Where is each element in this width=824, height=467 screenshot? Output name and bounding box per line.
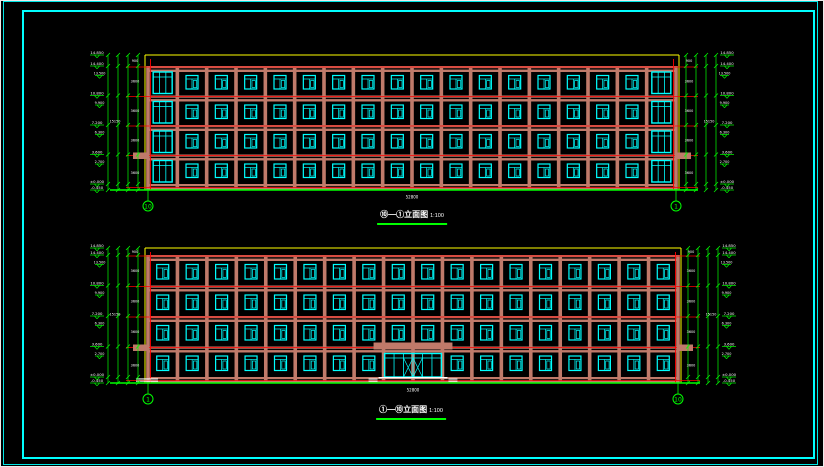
window-glyph: [509, 76, 521, 90]
window-frame: [153, 131, 172, 153]
line: [725, 190, 728, 193]
level-text: 14.850: [722, 243, 736, 248]
window-sash: [488, 331, 491, 339]
stair-window-glyph: [652, 161, 671, 183]
window-glyph: [567, 164, 579, 178]
window-glyph: [481, 265, 493, 280]
window-glyph: [628, 265, 640, 280]
window-sash: [341, 361, 344, 369]
pier: [558, 255, 562, 383]
window-glyph: [597, 76, 609, 90]
line: [727, 347, 730, 350]
dimension-stack-left: 14.85014.40010.8007.2003.600±0.000-0.450…: [90, 243, 140, 386]
window-sash: [193, 81, 196, 88]
level-marker: 3.600: [90, 341, 104, 349]
level-marker: 2.700: [722, 352, 732, 359]
window-glyph: [538, 105, 550, 119]
line: [725, 135, 728, 138]
window-sash: [604, 169, 607, 176]
level-text: 14.400: [722, 250, 736, 255]
line: [722, 164, 725, 167]
pier: [352, 66, 356, 190]
window-glyph: [421, 164, 433, 178]
level-text: 7.200: [92, 311, 103, 316]
pier: [146, 255, 150, 383]
window-sash: [369, 81, 372, 88]
line: [724, 295, 727, 298]
pier: [235, 255, 239, 383]
pier: [645, 66, 649, 190]
window-sash: [428, 81, 431, 88]
axis-number: 1: [146, 396, 150, 403]
window-sash: [516, 169, 519, 176]
line: [722, 105, 725, 108]
dim-text: 3600: [685, 79, 694, 83]
line: [725, 96, 728, 99]
level-text: 3.600: [92, 149, 103, 154]
level-text: 14.400: [90, 250, 104, 255]
window-glyph: [598, 265, 610, 280]
level-marker: 9.900: [95, 101, 105, 108]
line: [729, 255, 732, 258]
line: [97, 347, 100, 350]
window-sash: [665, 270, 668, 278]
stair-window-glyph: [153, 72, 172, 94]
window-sash: [282, 300, 285, 308]
window-sash: [604, 140, 607, 147]
window-glyph: [540, 326, 552, 341]
window-glyph: [215, 164, 227, 178]
pier: [410, 66, 414, 190]
window-glyph: [598, 295, 610, 310]
entrance-step: [448, 381, 457, 382]
level-marker: 7.200: [720, 120, 734, 128]
level-marker: 14.850: [90, 50, 104, 58]
window-sash: [604, 110, 607, 117]
window-sash: [252, 81, 255, 88]
window-sash: [547, 300, 550, 308]
window-sash: [517, 331, 520, 339]
pier: [674, 66, 678, 190]
pier: [676, 255, 680, 383]
level-marker: 14.400: [722, 250, 736, 258]
window-sash: [458, 361, 461, 369]
dim-text: 900: [132, 250, 138, 254]
dim-text: 3600: [687, 363, 696, 367]
window-sash: [282, 361, 285, 369]
level-text: 2.700: [95, 352, 105, 356]
line: [727, 255, 730, 258]
window-glyph: [186, 164, 198, 178]
level-marker: 6.300: [720, 130, 730, 137]
window-sash: [429, 331, 432, 339]
window-sash: [370, 331, 373, 339]
window-glyph: [479, 135, 491, 149]
dim-text: 3600: [131, 171, 140, 175]
window-glyph: [362, 105, 374, 119]
line: [97, 265, 100, 268]
window-sash: [223, 81, 226, 88]
level-text: 14.400: [720, 61, 734, 66]
window-sash: [547, 270, 550, 278]
line: [727, 265, 730, 268]
window-sash: [665, 361, 668, 369]
pier: [322, 66, 326, 190]
window-sash: [487, 81, 490, 88]
line: [95, 66, 98, 69]
pier: [616, 66, 620, 190]
line: [722, 135, 725, 138]
window-sash: [457, 110, 460, 117]
window-sash: [635, 361, 638, 369]
window-sash: [252, 169, 255, 176]
line: [727, 326, 730, 329]
window-glyph: [509, 105, 521, 119]
level-text: ±0.000: [720, 179, 735, 184]
window-sash: [223, 361, 226, 369]
window-glyph: [157, 265, 169, 280]
window-glyph: [157, 326, 169, 341]
window-glyph: [540, 295, 552, 310]
line: [97, 255, 100, 258]
entrance-step: [448, 379, 457, 380]
line: [729, 347, 732, 350]
window-sash: [665, 331, 668, 339]
cad-viewport[interactable]: 1015280014.85014.40010.8007.2003.600±0.0…: [0, 0, 824, 467]
line: [725, 55, 728, 58]
window-glyph: [304, 295, 316, 310]
window-sash: [282, 331, 285, 339]
window-sash: [488, 361, 491, 369]
dim-text: 15150: [110, 120, 121, 124]
level-marker: 2.700: [95, 160, 105, 167]
window-sash: [517, 270, 520, 278]
line: [725, 164, 728, 167]
window-sash: [487, 169, 490, 176]
window-sash: [606, 300, 609, 308]
window-glyph: [333, 76, 345, 90]
window-glyph: [626, 164, 638, 178]
window-sash: [164, 331, 167, 339]
stair-window-glyph: [153, 102, 172, 124]
window-glyph: [567, 105, 579, 119]
window-sash: [635, 300, 638, 308]
window-glyph: [333, 356, 345, 371]
window-glyph: [450, 76, 462, 90]
window-glyph: [186, 76, 198, 90]
window-sash: [399, 140, 402, 147]
line: [727, 286, 730, 289]
window-glyph: [245, 295, 257, 310]
stair-window-glyph: [652, 102, 671, 124]
line: [727, 55, 730, 58]
window-glyph: [422, 326, 434, 341]
line: [725, 76, 728, 79]
pier: [529, 255, 533, 383]
level-marker: 13.500: [94, 260, 106, 267]
window-sash: [193, 110, 196, 117]
line: [727, 96, 730, 99]
line: [95, 347, 98, 350]
line: [724, 356, 727, 359]
window-glyph: [422, 265, 434, 280]
dimension-stack-left: 14.85014.40010.8007.2003.600±0.000-0.450…: [90, 50, 140, 193]
line: [727, 383, 730, 386]
window-sash: [458, 300, 461, 308]
line: [97, 295, 100, 298]
entrance-canopy: [374, 343, 453, 350]
line: [729, 383, 732, 386]
window-sash: [575, 169, 578, 176]
window-sash: [340, 140, 343, 147]
window-sash: [340, 110, 343, 117]
window-glyph: [274, 76, 286, 90]
window-glyph: [538, 164, 550, 178]
window-glyph: [567, 76, 579, 90]
line: [95, 316, 98, 319]
level-marker: 13.500: [94, 71, 106, 78]
line: [725, 105, 728, 108]
window-sash: [252, 110, 255, 117]
stair-window-glyph: [652, 131, 671, 153]
window-glyph: [509, 164, 521, 178]
window-glyph: [540, 356, 552, 371]
side-canopy: [675, 153, 691, 160]
pier: [500, 255, 504, 383]
window-sash: [545, 110, 548, 117]
window-sash: [369, 110, 372, 117]
window-glyph: [362, 135, 374, 149]
window-sash: [576, 361, 579, 369]
line: [97, 125, 100, 128]
window-sash: [606, 331, 609, 339]
level-marker: 10.800: [90, 90, 104, 98]
window-sash: [575, 81, 578, 88]
window-glyph: [657, 295, 669, 310]
level-marker: 14.850: [720, 50, 734, 58]
pier: [264, 66, 268, 190]
pier: [586, 66, 590, 190]
level-text: 7.200: [92, 120, 103, 125]
window-glyph: [657, 356, 669, 371]
line: [95, 255, 98, 258]
window-glyph: [303, 164, 315, 178]
window-glyph: [186, 135, 198, 149]
window-sash: [429, 300, 432, 308]
level-marker: 6.300: [95, 321, 105, 328]
window-glyph: [510, 356, 522, 371]
dim-text: 900: [688, 250, 694, 254]
level-text: 14.850: [90, 243, 104, 248]
dim-text: 3600: [131, 109, 140, 113]
window-sash: [164, 270, 167, 278]
window-sash: [635, 331, 638, 339]
line: [97, 356, 100, 359]
window-sash: [457, 140, 460, 147]
window-sash: [370, 270, 373, 278]
level-text: 6.300: [720, 130, 730, 134]
level-marker: 7.200: [722, 311, 736, 319]
level-text: 13.500: [94, 71, 106, 75]
window-glyph: [479, 105, 491, 119]
level-marker: 3.600: [90, 149, 104, 157]
stair-window-glyph: [153, 131, 172, 153]
pier: [176, 255, 180, 383]
window-sash: [576, 331, 579, 339]
level-text: 3.600: [724, 341, 735, 346]
window-glyph: [186, 326, 198, 341]
window-glyph: [333, 326, 345, 341]
window-sash: [458, 270, 461, 278]
window-sash: [516, 140, 519, 147]
window-sash: [193, 331, 196, 339]
dim-text: 3600: [685, 109, 694, 113]
window-sash: [193, 140, 196, 147]
level-text: 14.850: [90, 50, 104, 55]
window-glyph: [274, 105, 286, 119]
line: [100, 135, 103, 138]
window-sash: [223, 169, 226, 176]
pier: [205, 66, 209, 190]
level-text: 3.600: [722, 149, 733, 154]
level-marker: 9.900: [95, 291, 105, 298]
line: [95, 55, 98, 58]
level-text: 13.500: [94, 260, 106, 264]
window-glyph: [597, 135, 609, 149]
level-marker: 7.200: [90, 311, 104, 319]
window-glyph: [481, 326, 493, 341]
window-sash: [282, 270, 285, 278]
line: [727, 316, 730, 319]
title-text: ①—⑩立面图: [379, 405, 427, 414]
window-frame: [652, 161, 671, 183]
window-glyph: [362, 164, 374, 178]
window-glyph: [275, 356, 287, 371]
window-sash: [311, 270, 314, 278]
level-marker: 3.600: [720, 149, 734, 157]
dim-text: 3600: [687, 330, 696, 334]
window-sash: [576, 300, 579, 308]
window-sash: [400, 331, 403, 339]
window-sash: [223, 110, 226, 117]
window-glyph: [157, 295, 169, 310]
line: [724, 265, 727, 268]
window-sash: [281, 81, 284, 88]
line: [97, 190, 100, 193]
line: [100, 265, 103, 268]
dim-text: 3600: [687, 299, 696, 303]
line: [729, 286, 732, 289]
window-sash: [457, 81, 460, 88]
front-elevation: 1105280014.85014.40010.8007.2003.600±0.0…: [90, 243, 737, 404]
line: [95, 286, 98, 289]
window-sash: [311, 331, 314, 339]
pier: [234, 66, 238, 190]
window-sash: [341, 300, 344, 308]
axis-number: 10: [674, 396, 682, 403]
window-sash: [193, 270, 196, 278]
dim-text: 3600: [687, 269, 696, 273]
level-text: ±0.000: [90, 372, 105, 377]
window-sash: [223, 331, 226, 339]
line: [97, 164, 100, 167]
window-sash: [488, 270, 491, 278]
pier: [293, 66, 297, 190]
window-glyph: [363, 265, 375, 280]
stair-window-glyph: [153, 161, 172, 183]
window-glyph: [451, 265, 463, 280]
level-text: -0.450: [91, 378, 104, 383]
level-text: 2.700: [720, 160, 730, 164]
level-text: 9.900: [722, 291, 732, 295]
window-glyph: [540, 265, 552, 280]
line: [100, 76, 103, 79]
axis-number: 1: [674, 203, 678, 210]
window-glyph: [628, 356, 640, 371]
window-sash: [547, 361, 550, 369]
window-glyph: [481, 356, 493, 371]
window-sash: [665, 300, 668, 308]
line: [100, 295, 103, 298]
window-sash: [516, 81, 519, 88]
level-marker: 10.800: [720, 90, 734, 98]
dim-text: 900: [132, 59, 138, 63]
window-glyph: [215, 135, 227, 149]
level-marker: 14.400: [90, 250, 104, 258]
window-sash: [517, 300, 520, 308]
window-glyph: [304, 356, 316, 371]
window-sash: [428, 110, 431, 117]
window-sash: [428, 140, 431, 147]
level-marker: 10.800: [90, 280, 104, 288]
window-sash: [399, 81, 402, 88]
window-glyph: [274, 135, 286, 149]
window-frame: [652, 131, 671, 153]
window-glyph: [657, 265, 669, 280]
window-glyph: [569, 326, 581, 341]
line: [95, 383, 98, 386]
window-glyph: [451, 326, 463, 341]
window-glyph: [628, 295, 640, 310]
window-glyph: [450, 105, 462, 119]
window-sash: [399, 169, 402, 176]
level-text: 9.900: [95, 101, 105, 105]
window-glyph: [569, 356, 581, 371]
dim-text: 900: [686, 59, 692, 63]
title-scale: 1:100: [429, 408, 443, 414]
dim-text: 3600: [131, 269, 140, 273]
entrance-step: [369, 381, 378, 382]
window-sash: [545, 140, 548, 147]
pier: [352, 255, 356, 383]
line: [97, 96, 100, 99]
line: [95, 96, 98, 99]
window-glyph: [567, 135, 579, 149]
line: [100, 105, 103, 108]
line: [95, 155, 98, 158]
pier: [440, 66, 444, 190]
window-sash: [400, 270, 403, 278]
window-sash: [457, 169, 460, 176]
window-sash: [458, 331, 461, 339]
window-glyph: [333, 164, 345, 178]
window-glyph: [186, 356, 198, 371]
pier: [528, 66, 532, 190]
window-glyph: [391, 105, 403, 119]
pier: [293, 255, 297, 383]
window-glyph: [363, 295, 375, 310]
level-marker: 2.700: [720, 160, 730, 167]
